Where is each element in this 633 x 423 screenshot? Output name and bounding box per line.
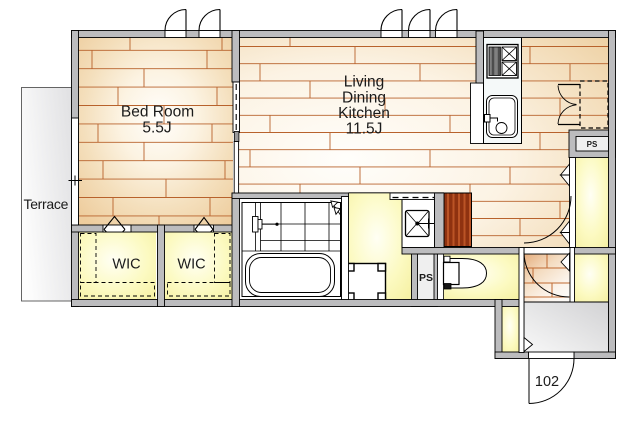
svg-text:WIC: WIC bbox=[112, 257, 140, 273]
svg-text:Dining: Dining bbox=[342, 89, 386, 106]
svg-text:11.5J: 11.5J bbox=[346, 121, 383, 138]
svg-text:Bed Room: Bed Room bbox=[121, 104, 194, 121]
svg-text:102: 102 bbox=[535, 374, 559, 390]
svg-text:WIC: WIC bbox=[177, 257, 205, 273]
svg-text:PS: PS bbox=[419, 272, 433, 284]
svg-text:Living: Living bbox=[344, 74, 385, 91]
svg-text:Terrace: Terrace bbox=[24, 196, 69, 212]
svg-text:5.5J: 5.5J bbox=[142, 120, 171, 137]
svg-text:Kitchen: Kitchen bbox=[338, 105, 390, 122]
svg-text:PS: PS bbox=[587, 140, 598, 149]
